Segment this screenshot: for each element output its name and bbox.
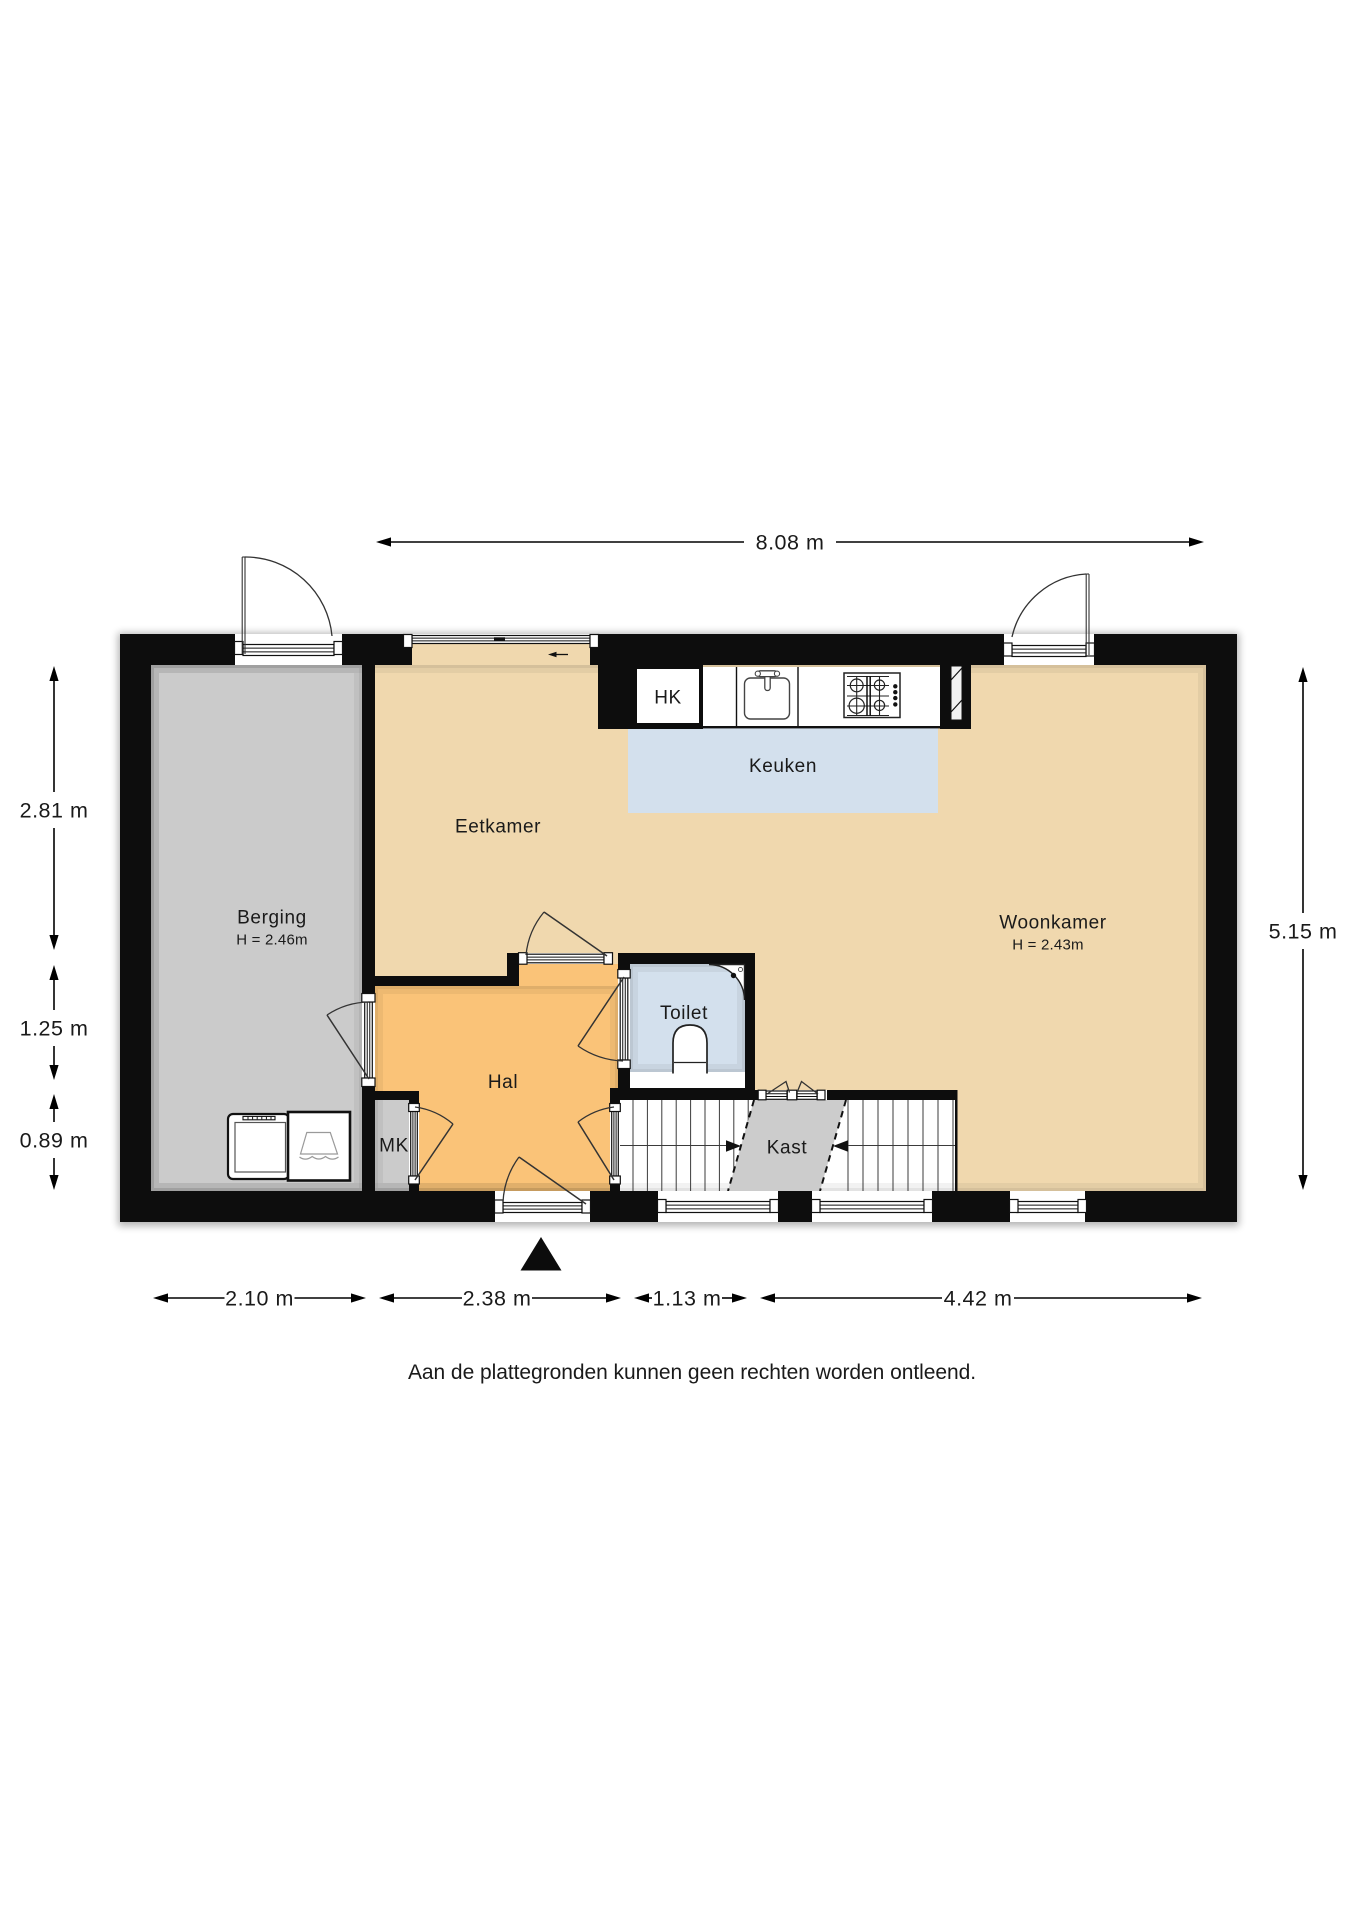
svg-text:1.25 m: 1.25 m: [20, 1016, 89, 1040]
svg-text:H = 2.43m: H = 2.43m: [1012, 937, 1083, 954]
svg-text:Aan de plattegronden kunnen ge: Aan de plattegronden kunnen geen rechten…: [408, 1361, 976, 1384]
svg-text:8.08 m: 8.08 m: [756, 530, 825, 554]
svg-text:2.81 m: 2.81 m: [20, 798, 89, 822]
svg-text:Toilet: Toilet: [660, 1003, 708, 1024]
svg-text:Keuken: Keuken: [749, 756, 817, 777]
svg-text:Woonkamer: Woonkamer: [999, 913, 1107, 934]
svg-text:Kast: Kast: [767, 1138, 808, 1159]
svg-text:Eetkamer: Eetkamer: [455, 817, 541, 838]
svg-text:MK: MK: [379, 1136, 409, 1157]
svg-text:2.10 m: 2.10 m: [225, 1286, 294, 1310]
svg-text:H = 2.46m: H = 2.46m: [236, 932, 307, 949]
svg-text:0.89 m: 0.89 m: [20, 1128, 89, 1152]
svg-text:Berging: Berging: [237, 908, 307, 929]
svg-text:Hal: Hal: [488, 1072, 518, 1093]
svg-text:2.38 m: 2.38 m: [463, 1286, 532, 1310]
svg-text:5.15 m: 5.15 m: [1269, 919, 1338, 943]
svg-text:1.13 m: 1.13 m: [653, 1286, 722, 1310]
svg-text:HK: HK: [654, 688, 682, 709]
svg-text:4.42 m: 4.42 m: [944, 1286, 1013, 1310]
